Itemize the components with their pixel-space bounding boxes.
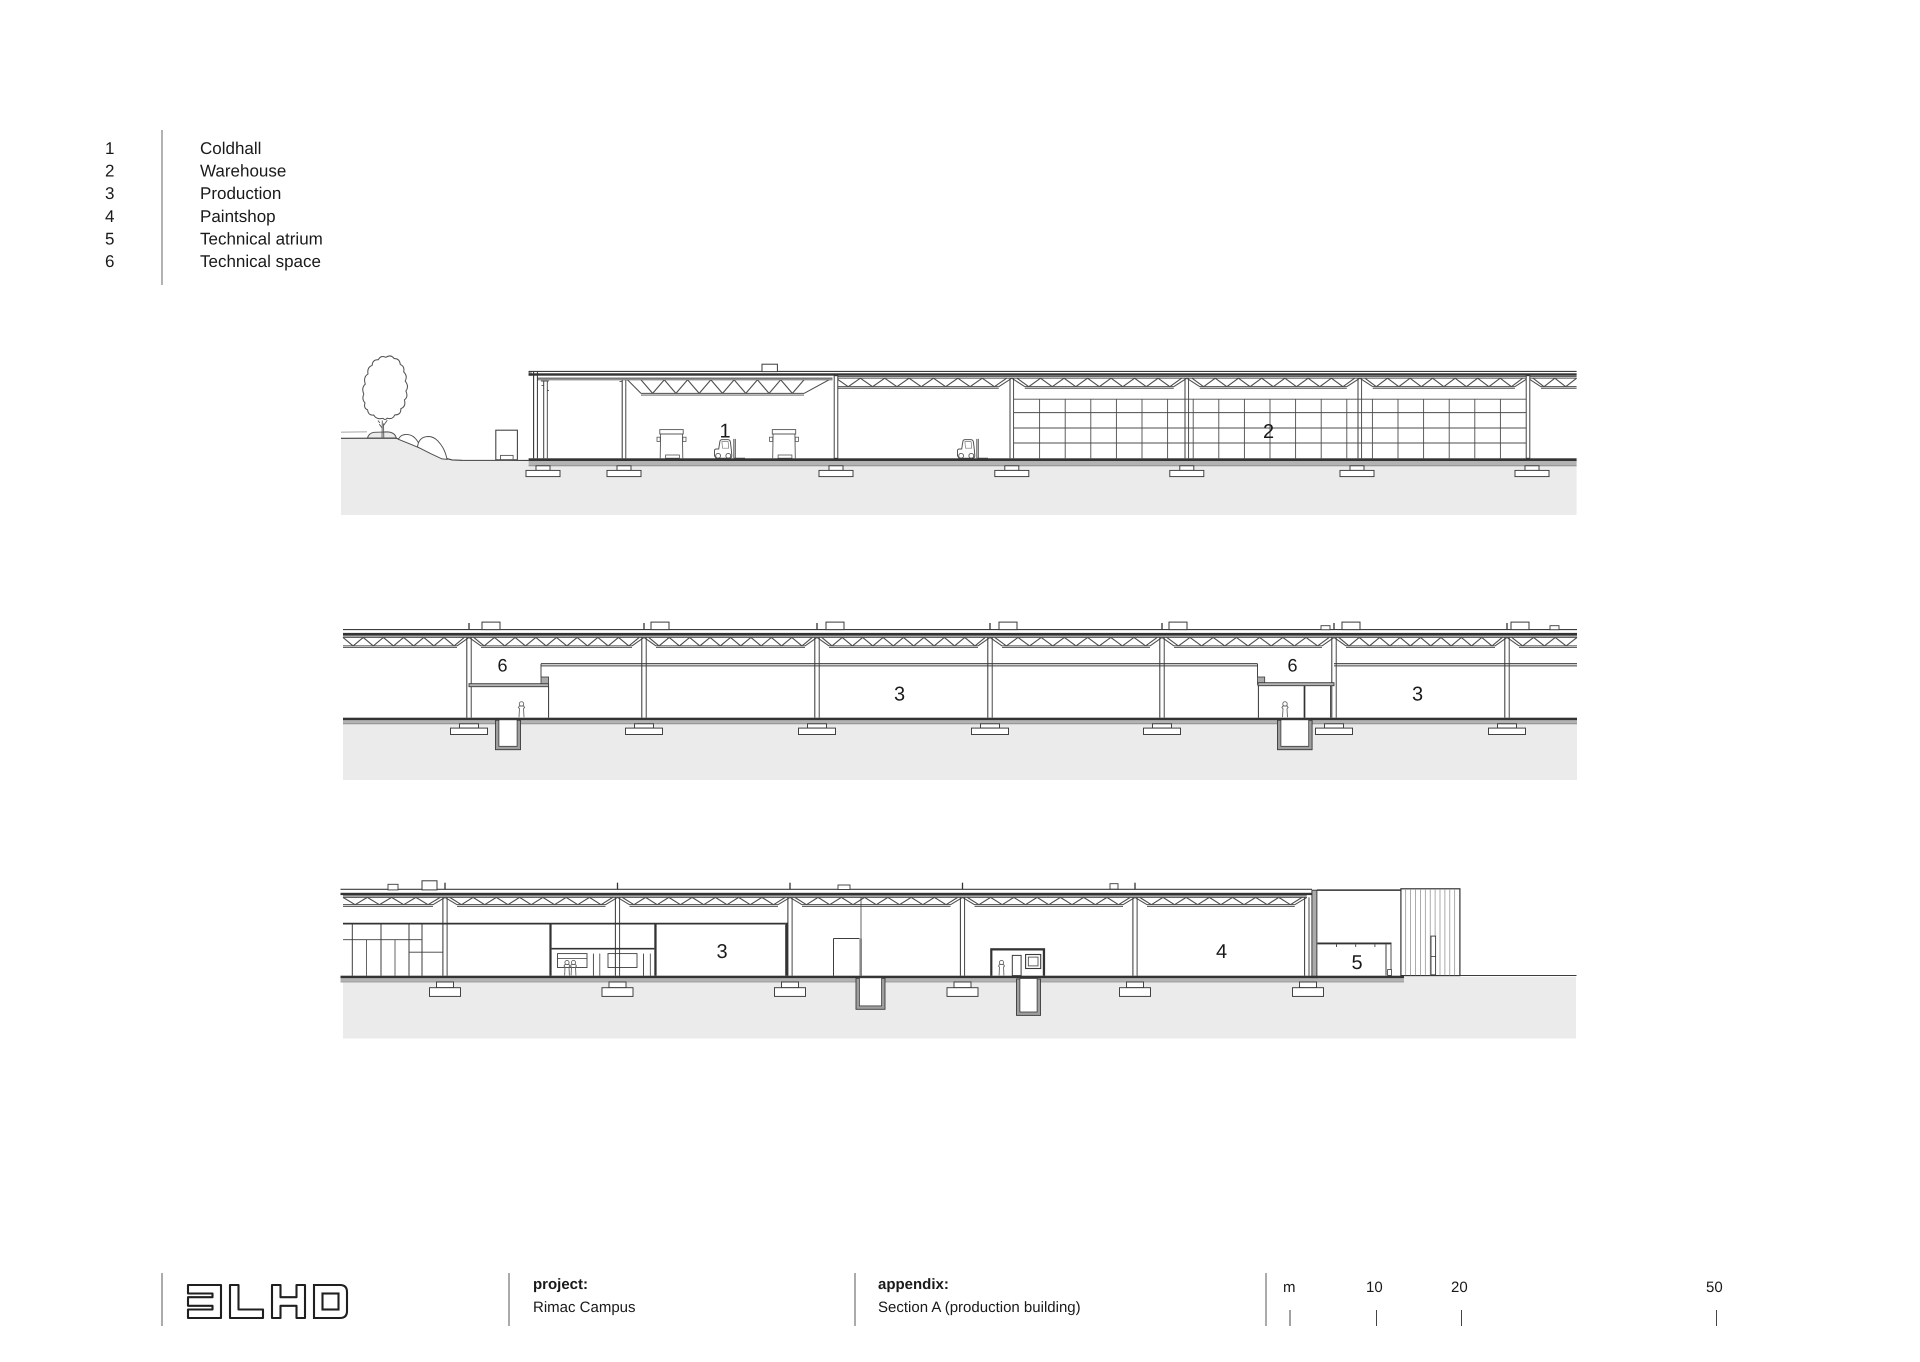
svg-text:6: 6 [1288,656,1298,676]
svg-text:2: 2 [105,162,114,181]
svg-text:m: m [1283,1279,1296,1296]
svg-text:Section A (production building: Section A (production building) [878,1299,1081,1316]
svg-text:3: 3 [1412,684,1423,706]
svg-text:project:: project: [533,1276,588,1293]
svg-text:6: 6 [105,252,114,271]
svg-text:Technical space: Technical space [200,252,321,271]
svg-text:Paintshop: Paintshop [200,207,276,226]
svg-text:Warehouse: Warehouse [200,162,286,181]
svg-text:10: 10 [1366,1279,1383,1296]
svg-text:5: 5 [1352,952,1363,974]
svg-text:Coldhall: Coldhall [200,139,261,158]
svg-text:3: 3 [105,184,114,203]
svg-text:3: 3 [894,684,905,706]
svg-text:5: 5 [105,229,114,248]
svg-text:20: 20 [1451,1279,1468,1296]
svg-text:4: 4 [105,207,114,226]
svg-text:appendix:: appendix: [878,1276,949,1293]
svg-text:Technical atrium: Technical atrium [200,229,323,248]
svg-text:1: 1 [720,421,731,443]
svg-text:Rimac Campus: Rimac Campus [533,1299,636,1316]
svg-text:4: 4 [1216,941,1227,963]
svg-text:1: 1 [105,139,114,158]
svg-text:Production: Production [200,184,281,203]
svg-text:6: 6 [498,656,508,676]
svg-text:2: 2 [1263,421,1274,443]
svg-text:3: 3 [717,941,728,963]
svg-text:50: 50 [1706,1279,1723,1296]
